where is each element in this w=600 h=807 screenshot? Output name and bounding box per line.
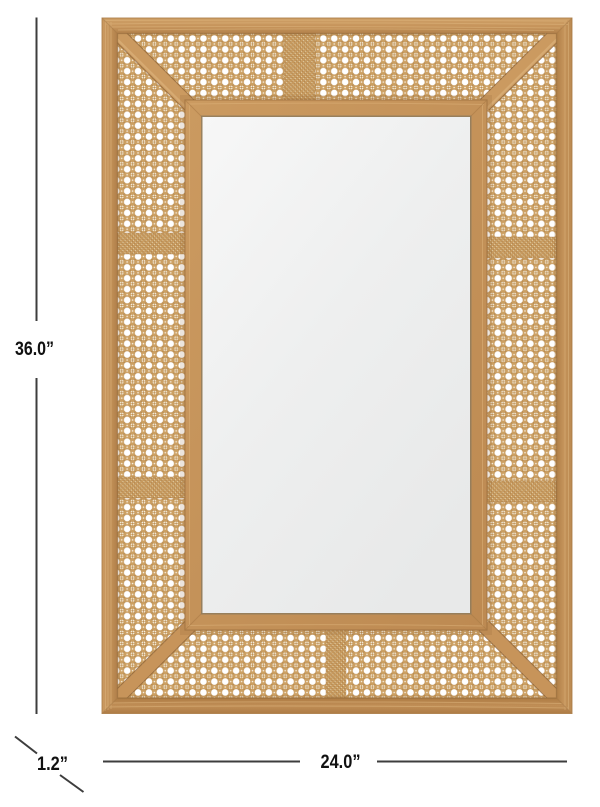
svg-text:36.0”: 36.0” [15, 338, 54, 360]
svg-text:1.2”: 1.2” [37, 753, 68, 775]
svg-text:24.0”: 24.0” [321, 751, 361, 773]
